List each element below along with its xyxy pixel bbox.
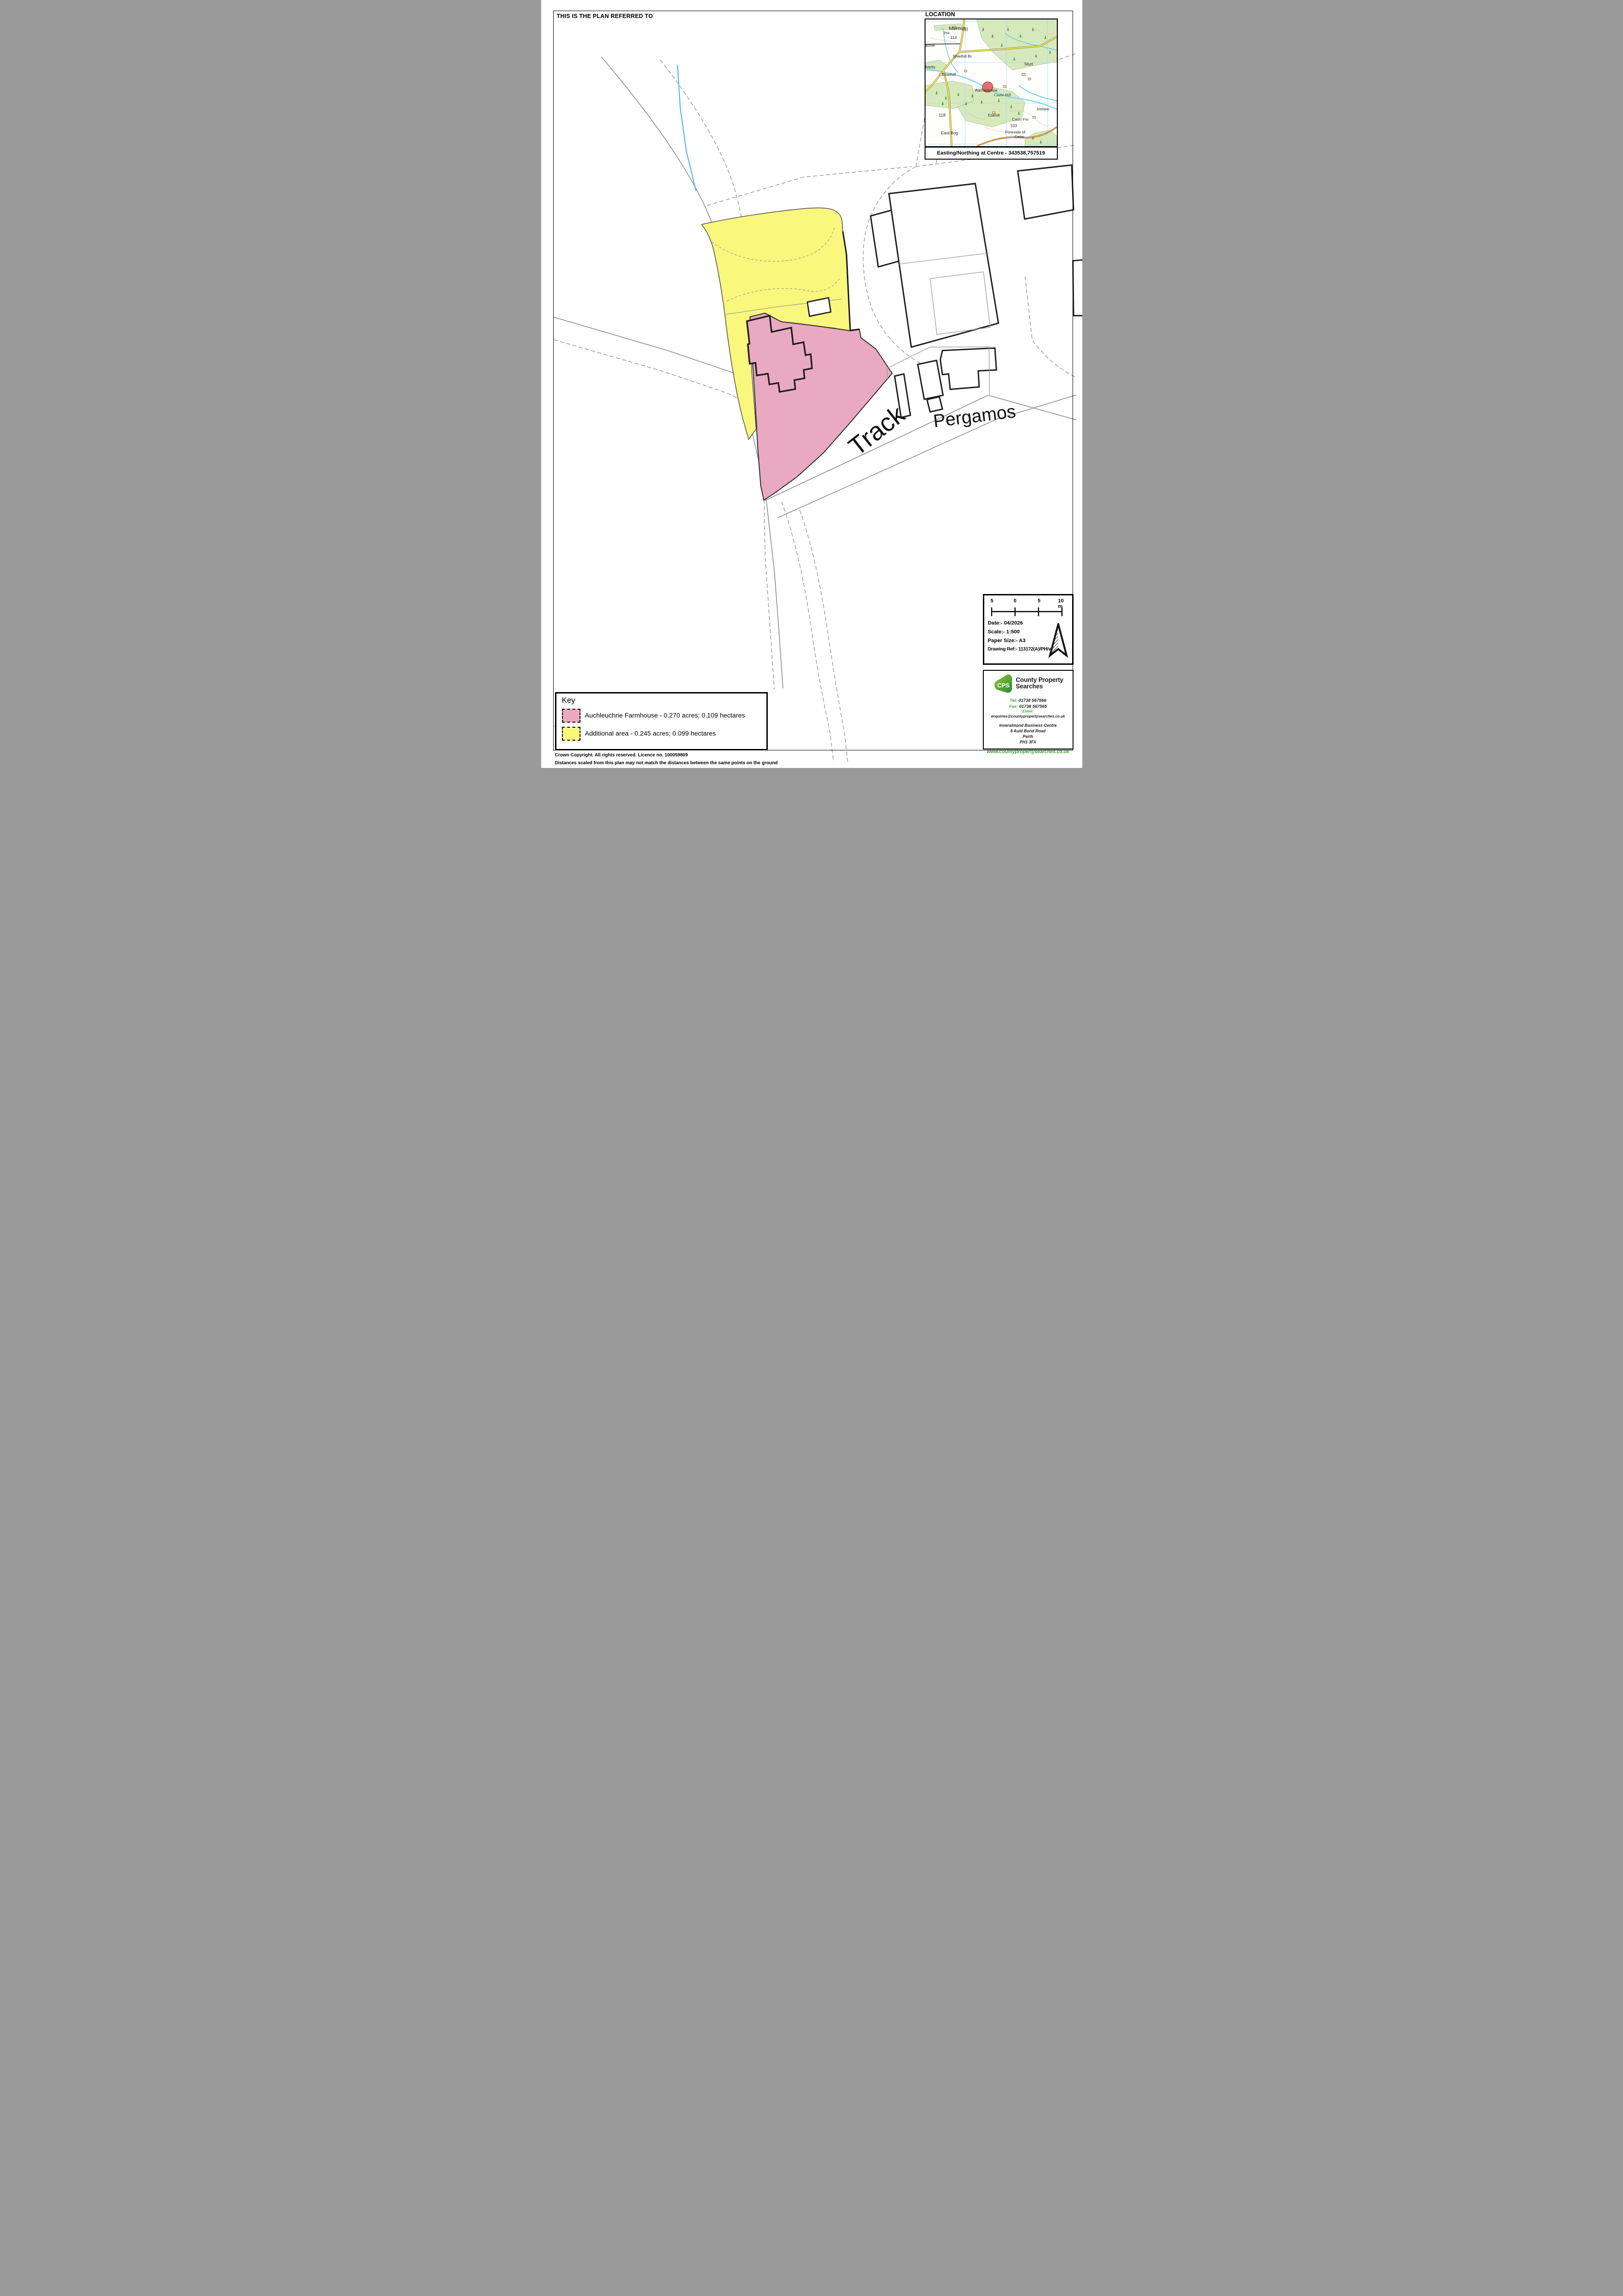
scale-tick-label: 0: [1014, 598, 1017, 604]
location-title: LOCATION: [926, 11, 1058, 18]
company-header: CPS County Property Searches: [986, 674, 1070, 694]
fax-label: Fax:: [1009, 704, 1018, 709]
scale-tick-label: 5: [991, 598, 994, 604]
fax-value: 01738 567565: [1019, 704, 1047, 709]
svg-text:118: 118: [938, 113, 945, 118]
company-name-line2: Searches: [1016, 683, 1063, 690]
company-panel: CPS County Property Searches Tel: 01738 …: [983, 670, 1074, 749]
north-arrow-icon: [1048, 623, 1068, 658]
svg-text:Shielhill Br: Shielhill Br: [952, 54, 971, 58]
info-panel: 5 0 5 10 m Date:- 04/2026 Scale:- 1:500 …: [983, 594, 1074, 665]
fax-line: Fax: 01738 567565: [986, 704, 1070, 710]
svg-text:Castle Hill: Castle Hill: [994, 93, 1011, 97]
svg-text:East Bog: East Bog: [941, 130, 958, 135]
company-name-line1: County Property: [1016, 677, 1063, 683]
svg-text:103: 103: [1010, 124, 1017, 128]
svg-text:Inshew: Inshew: [1037, 107, 1049, 111]
address-line: PH1 3FX: [986, 740, 1070, 745]
key-panel: Key Auchleuchrie Farmhouse - 0.270 acres…: [555, 692, 768, 750]
svg-text:harity: harity: [926, 65, 936, 69]
company-address: Inveralmond Business Centre 6 Auld Bond …: [986, 723, 1070, 745]
distances-note: Distances scaled from this plan may not …: [555, 761, 778, 766]
location-panel: LOCATION: [925, 11, 1058, 160]
address-line: 6 Auld Bond Road: [986, 729, 1070, 734]
copyright-note: Crown Copyright. All rights reserved. Li…: [555, 753, 688, 758]
easting-northing-caption: Easting/Northing at Centre - 343538,7575…: [925, 147, 1058, 160]
svg-text:CPS: CPS: [997, 682, 1010, 689]
email-line: Email: enquiries@countypropertysearches.…: [986, 709, 1070, 719]
scale-bar-labels: 5 0 5 10 m: [988, 598, 1068, 604]
key-item-additional: Additional area - 0.245 acres; 0.099 hec…: [562, 727, 761, 741]
plan-title-note: THIS IS THE PLAN REFERRED TO: [557, 13, 653, 19]
svg-text:Sturt: Sturt: [1024, 62, 1033, 67]
tel-label: Tel:: [1010, 698, 1017, 703]
pink-swatch: [562, 709, 580, 723]
svg-text:Foreside of: Foreside of: [1005, 130, 1025, 134]
yellow-swatch: [562, 727, 580, 741]
key-item-label: Auchleuchrie Farmhouse - 0.270 acres; 0.…: [585, 712, 745, 719]
svg-text:achie: achie: [926, 43, 935, 48]
location-inset-map: Memus PH 114 achie Shielhill Br harity S…: [925, 19, 1058, 147]
svg-text:Cairn: Cairn: [1014, 134, 1024, 139]
svg-text:Shielhill: Shielhill: [942, 72, 956, 77]
scale-bar: [988, 606, 1068, 617]
svg-text:114: 114: [950, 35, 957, 40]
email-value: enquiries@countypropertysearches.co.uk: [991, 714, 1065, 718]
plan-sheet: Track Pergamos THIS IS THE PLAN REFERRED…: [541, 0, 1082, 768]
svg-text:Memus: Memus: [949, 26, 966, 31]
company-contacts: Tel: 01738 567566 Fax: 01738 567565 Emai…: [986, 698, 1070, 719]
cps-logo-icon: CPS: [993, 674, 1014, 694]
address-line: Perth: [986, 734, 1070, 740]
svg-text:Auchleuchrie: Auchleuchrie: [975, 88, 997, 93]
key-title: Key: [562, 696, 761, 705]
svg-text:Cairn Fm: Cairn Fm: [1012, 117, 1028, 122]
svg-text:Eskhill: Eskhill: [988, 113, 1000, 118]
scale-tick-label: 10 m: [1058, 598, 1068, 609]
company-name: County Property Searches: [1016, 677, 1063, 690]
svg-text:PH: PH: [944, 31, 949, 36]
tel-line: Tel: 01738 567566: [986, 698, 1070, 704]
scale-tick-label: 5: [1038, 598, 1041, 604]
key-item-farmhouse: Auchleuchrie Farmhouse - 0.270 acres; 0.…: [562, 709, 761, 723]
tel-value: 01738 567566: [1018, 698, 1046, 703]
address-line: Inveralmond Business Centre: [986, 723, 1070, 729]
key-item-label: Additional area - 0.245 acres; 0.099 hec…: [585, 730, 716, 737]
company-website: www.countypropertysearches.co.uk: [986, 749, 1070, 755]
email-label: Email:: [1022, 709, 1033, 713]
os-map: Memus PH 114 achie Shielhill Br harity S…: [926, 19, 1057, 146]
